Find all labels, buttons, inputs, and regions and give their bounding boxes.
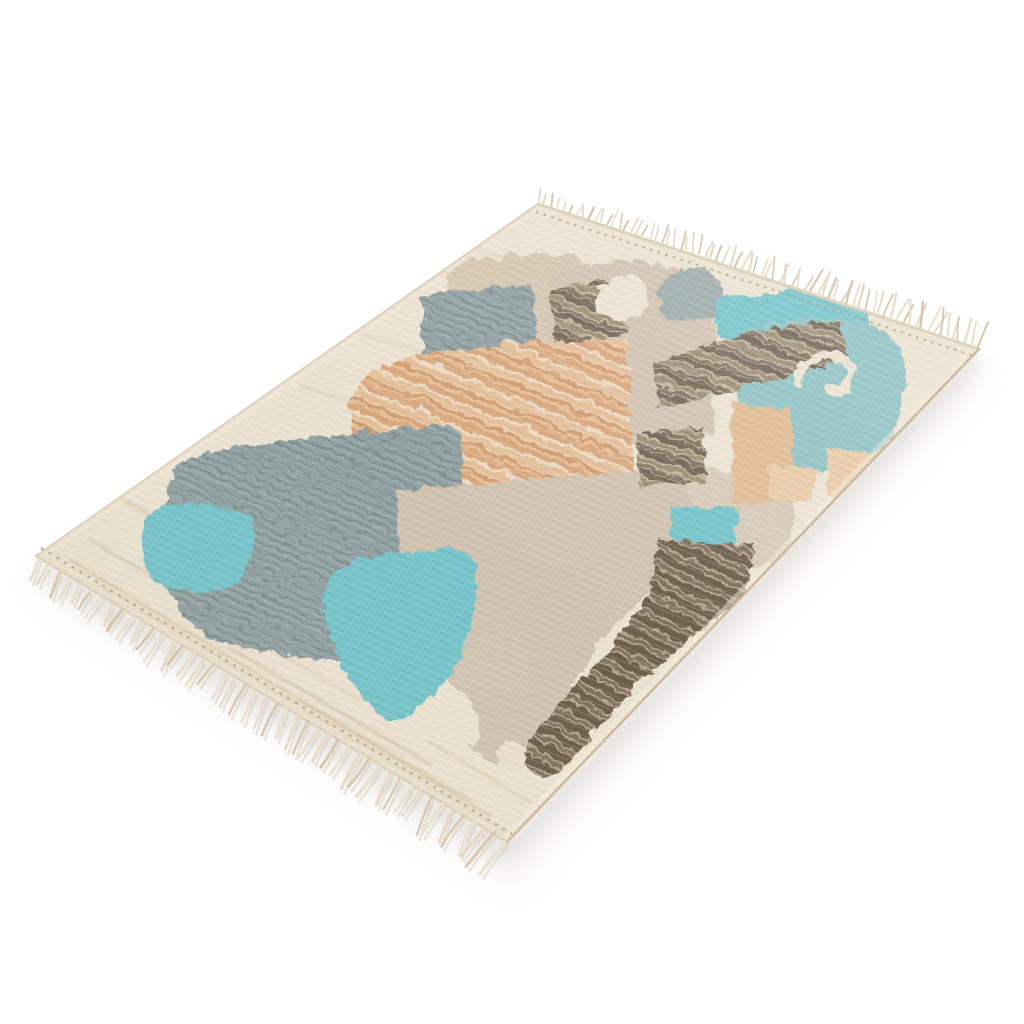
photo-canvas: [0, 0, 1024, 1024]
fringe-tassel: [551, 194, 552, 207]
fringe-tassel: [909, 300, 910, 326]
fringe-tassel: [583, 206, 584, 217]
fringe-tassel: [686, 236, 687, 251]
rug-photo: [0, 0, 1024, 1024]
